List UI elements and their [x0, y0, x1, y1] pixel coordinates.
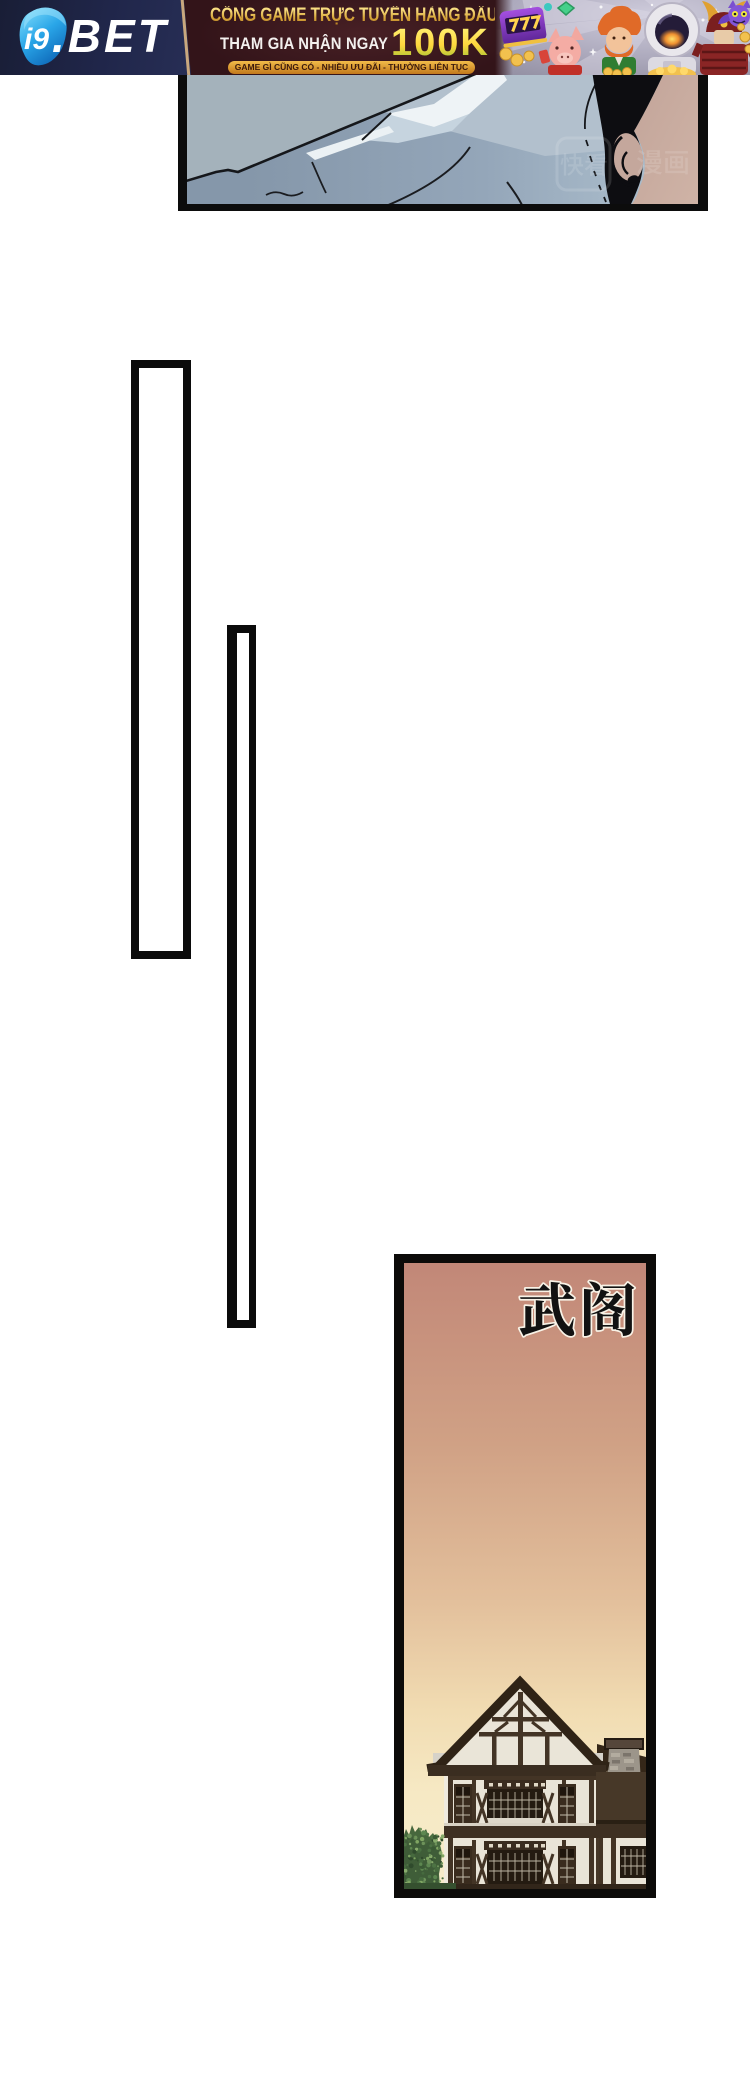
- svg-text:i9: i9: [24, 23, 49, 56]
